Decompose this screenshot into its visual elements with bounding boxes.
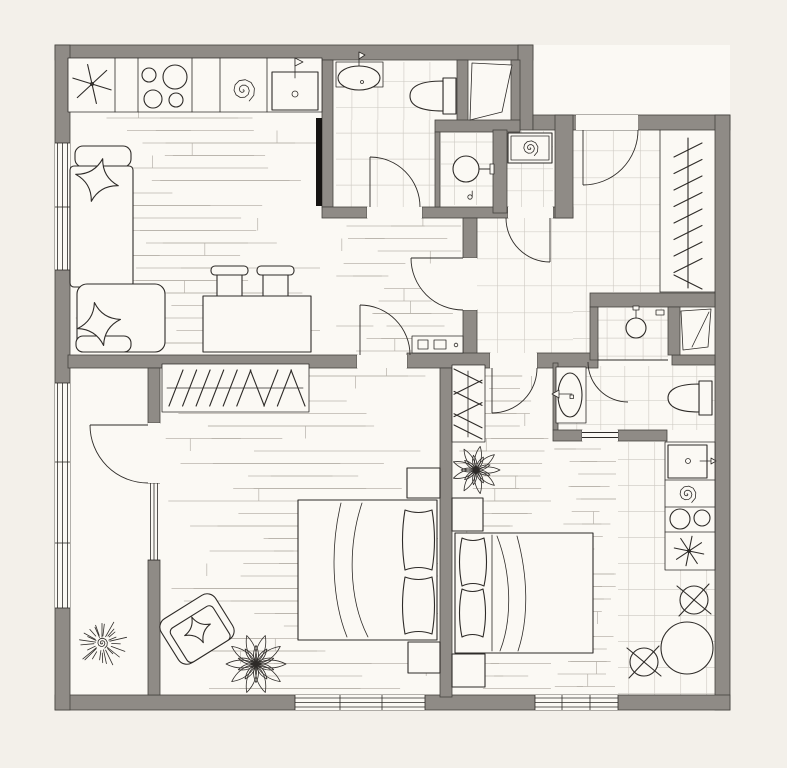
nightstand — [408, 642, 440, 673]
window-bedroom-bottom — [295, 695, 425, 710]
window-living-left — [55, 143, 70, 270]
round-table — [661, 622, 713, 674]
console-cabinet — [412, 336, 463, 353]
nightstand — [452, 654, 485, 687]
nightstand — [452, 498, 483, 531]
window-balcony-partition — [148, 483, 160, 560]
double-bed — [298, 500, 437, 640]
wall-basin — [453, 156, 479, 182]
sink — [668, 445, 707, 478]
doorway-bathroom-bottom — [582, 430, 618, 441]
toilet-tank — [443, 78, 456, 114]
stool — [217, 275, 242, 296]
bedroom-wardrobe — [162, 364, 309, 412]
window-balcony-left — [55, 383, 70, 608]
double-bed — [455, 533, 593, 653]
toilet-tank — [699, 381, 712, 415]
dining-table — [203, 296, 311, 352]
shower-head-icon — [626, 318, 646, 338]
soap-shelf — [656, 310, 664, 315]
kitchenette — [665, 442, 716, 570]
floor-plan — [0, 0, 787, 768]
floor-plan-drawing — [0, 0, 787, 768]
stool — [263, 275, 288, 296]
window-studio-bottom — [535, 695, 618, 710]
washing-machine — [508, 133, 552, 163]
sink-basin — [338, 66, 380, 90]
stool-top — [257, 266, 294, 275]
stool-top — [211, 266, 248, 275]
studio-wardrobe — [452, 365, 485, 442]
closet-middle-wardrobe — [681, 309, 711, 350]
tall-black-unit — [316, 118, 322, 206]
nightstand — [407, 468, 440, 498]
